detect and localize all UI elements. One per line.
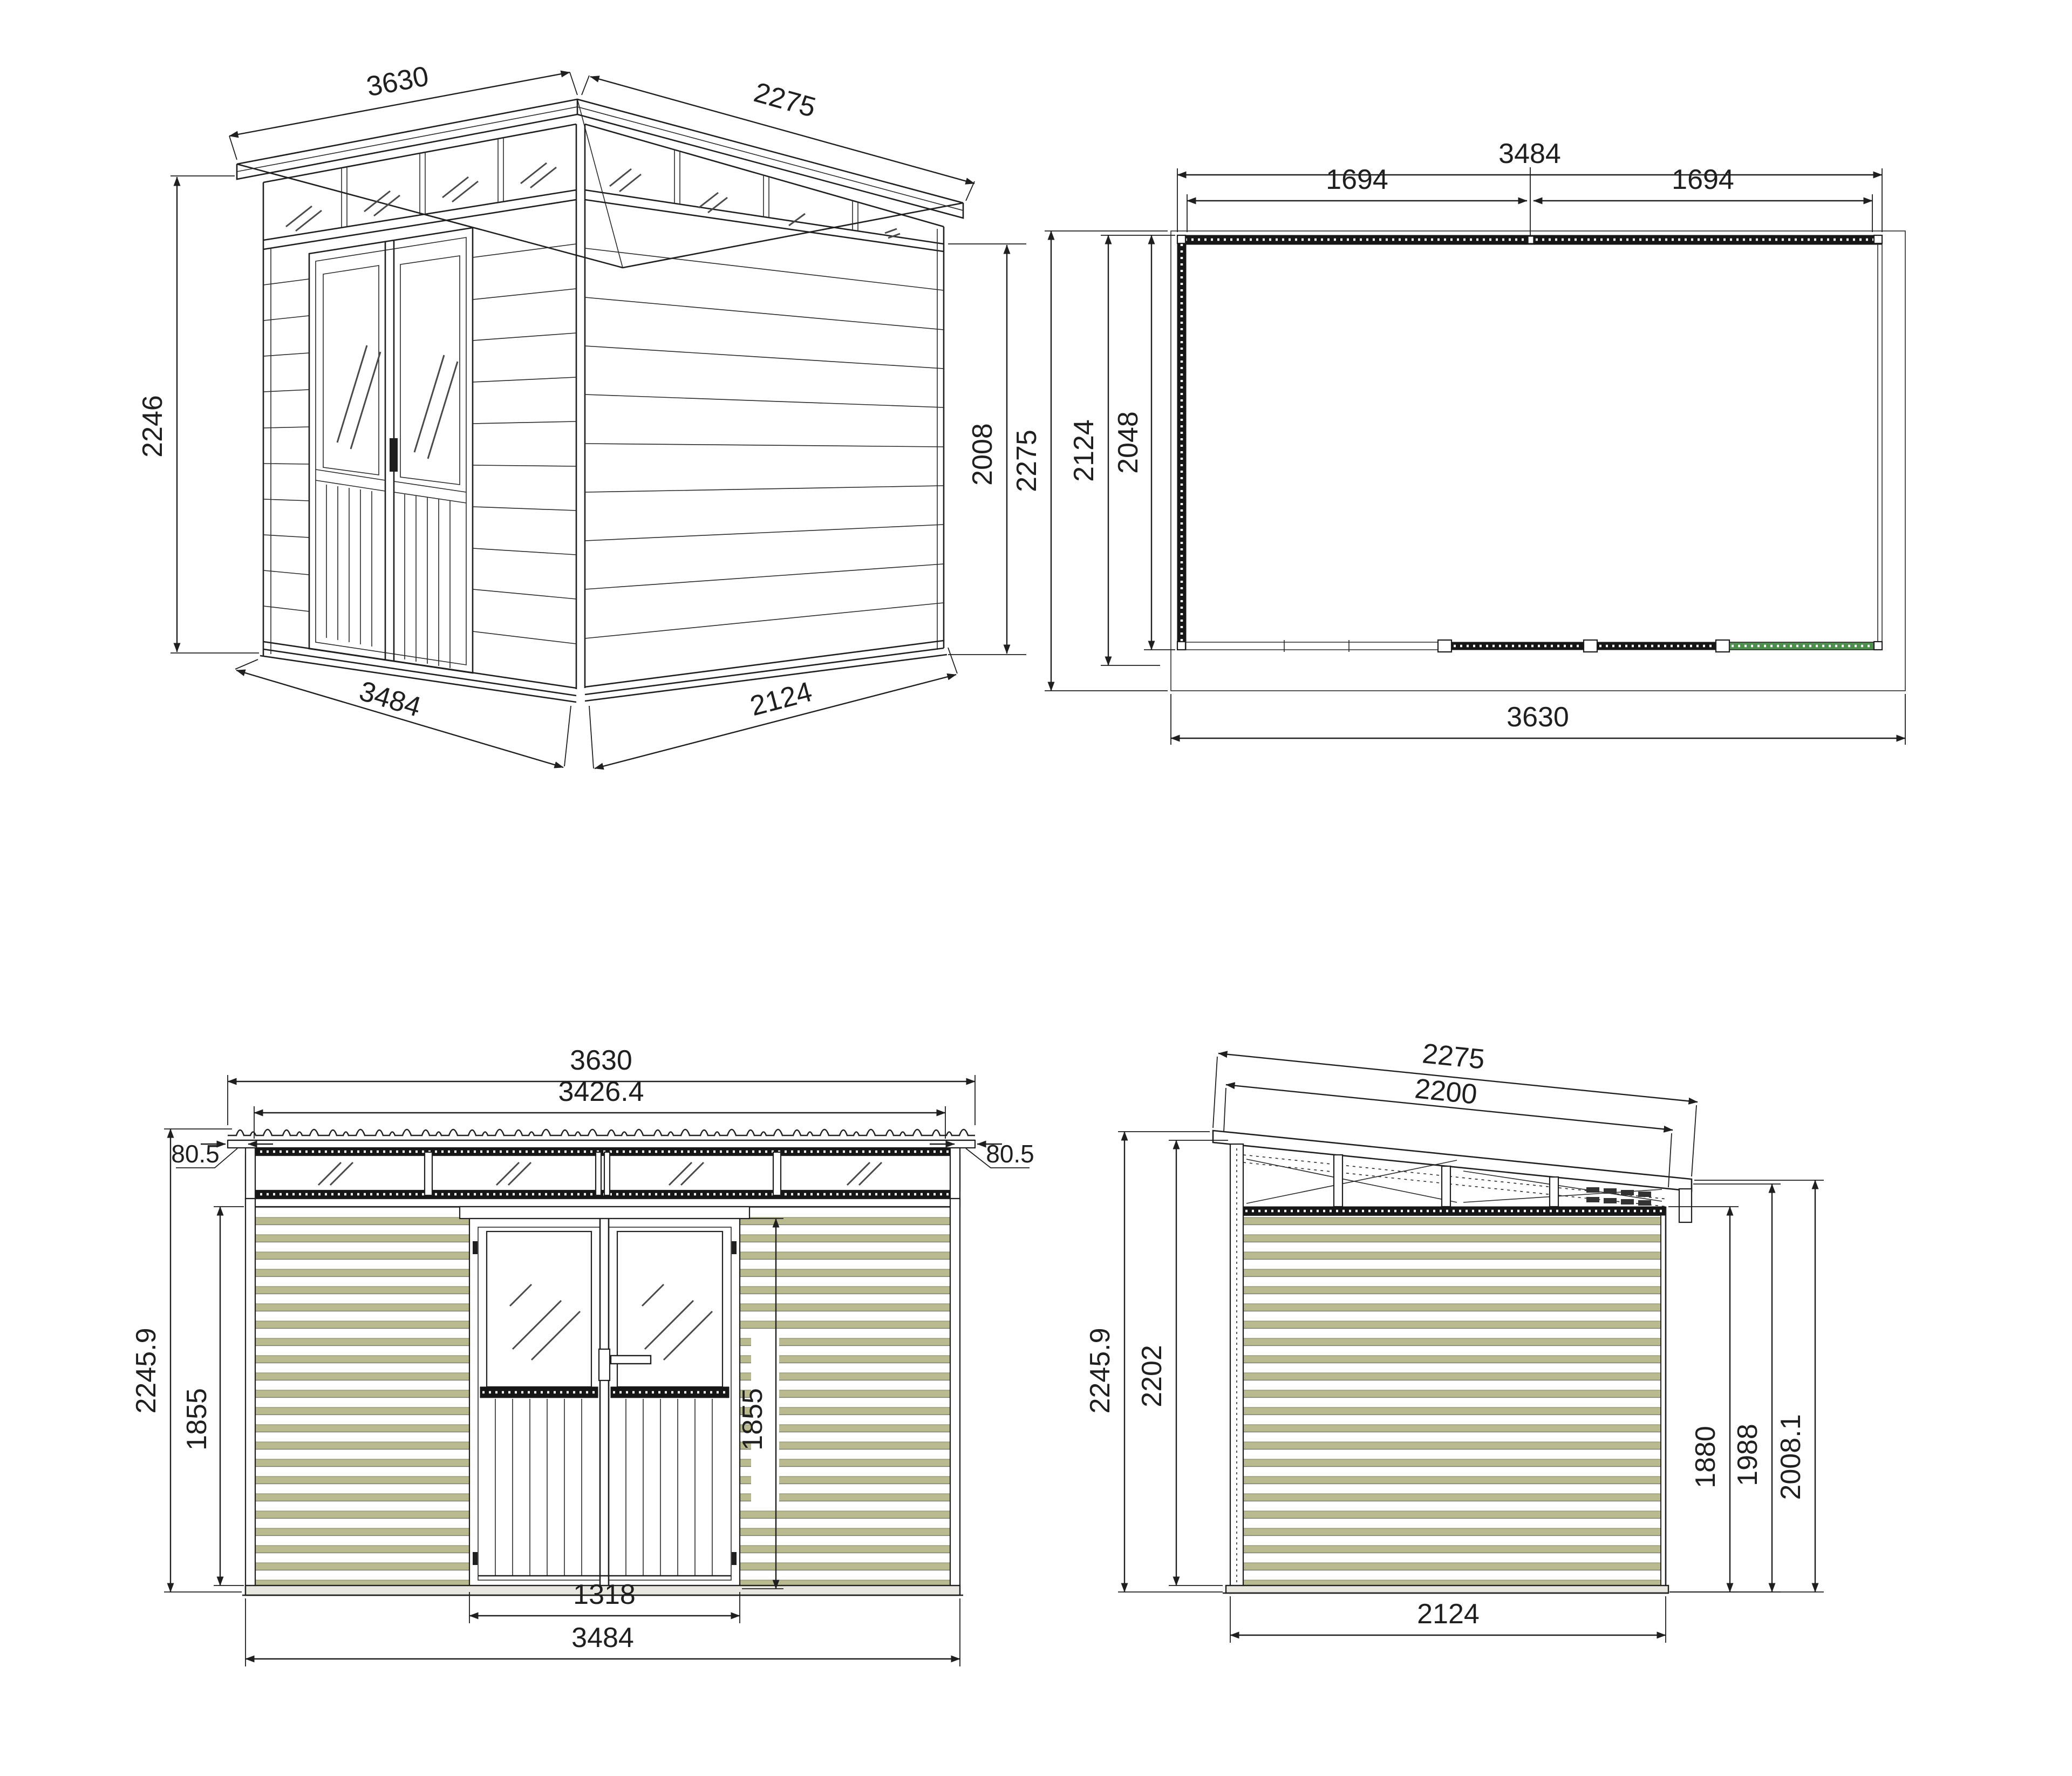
dim-label: 2202 (1136, 1345, 1168, 1407)
iso-clerestory-right (585, 124, 944, 251)
front-roof-fascia (228, 1140, 975, 1148)
side-truss (1246, 1155, 1662, 1207)
door-handle (390, 438, 398, 472)
front-clerestory (246, 1148, 960, 1207)
dim-label: 2124 (747, 676, 815, 722)
dim-label: 1880 (1690, 1426, 1721, 1488)
dim-label: 1694 (1326, 164, 1388, 195)
dim-label: 1988 (1732, 1424, 1763, 1486)
dim-label: 2245.9 (131, 1328, 162, 1413)
dim-label: 80.5 (171, 1140, 220, 1168)
side-elevation: 2275 2200 2245.9 2202 1880 1988 2008.1 2… (1085, 1038, 1824, 1643)
dim-label: 3630 (1507, 702, 1569, 733)
dim-label: 2275 (1011, 430, 1042, 492)
front-double-door (460, 1207, 749, 1589)
plan-dimensions: 3484 1694 1694 2275 2124 2048 3630 (1011, 138, 1905, 745)
dim-label: 3484 (1498, 138, 1561, 169)
dim-label: 80.5 (986, 1140, 1034, 1168)
dim-label: 2246 (137, 395, 168, 458)
plan-view: 3484 1694 1694 2275 2124 2048 3630 (1011, 138, 1905, 745)
door-handle (611, 1356, 651, 1364)
front-corner-left (246, 1199, 255, 1595)
iso-clerestory-left (263, 124, 576, 249)
plan-roof-outline (1171, 231, 1905, 691)
glass-marks (286, 163, 556, 231)
front-elevation: 3630 3426.4 80.5 80.5 2245.9 1855 1855 1… (131, 1045, 1034, 1666)
dim-label: 2048 (1113, 411, 1144, 474)
dim-label: 3426.4 (558, 1076, 644, 1107)
drawing-canvas: 3630 2275 2246 2008 3484 2124 (0, 0, 2072, 1776)
dim-label: 2124 (1068, 419, 1100, 482)
dim-label: 2275 (751, 77, 819, 124)
dim-label: 3630 (364, 60, 431, 103)
front-roof-corrugation (228, 1128, 975, 1140)
dim-label: 3630 (570, 1045, 632, 1076)
technical-drawing-sheet: 3630 2275 2246 2008 3484 2124 (0, 0, 2072, 1776)
iso-double-door (309, 228, 473, 673)
dim-label: 2200 (1413, 1073, 1478, 1110)
dim-label: 2124 (1417, 1598, 1480, 1630)
isometric-view: 3630 2275 2246 2008 3484 2124 (137, 60, 1026, 768)
front-corner-right (950, 1199, 960, 1595)
dim-label: 2275 (1421, 1038, 1486, 1075)
dim-label: 2008.1 (1775, 1414, 1807, 1500)
plan-walls (1177, 235, 1882, 652)
iso-wall-left (260, 244, 576, 702)
side-wall (1223, 1144, 1668, 1593)
dim-label: 3484 (571, 1622, 634, 1653)
front-siding-left (255, 1207, 469, 1586)
dim-label: 1694 (1672, 164, 1734, 195)
side-base (1226, 1586, 1668, 1593)
side-front-post (1230, 1144, 1243, 1592)
side-vent (1586, 1187, 1651, 1206)
dim-label: 2008 (967, 423, 998, 486)
iso-wall-right (585, 227, 947, 701)
door-lock (599, 1349, 610, 1380)
dim-label: 1855 (737, 1388, 768, 1451)
dim-label: 1318 (573, 1579, 636, 1610)
dim-label: 2245.9 (1085, 1328, 1116, 1413)
dim-label: 1855 (181, 1388, 213, 1451)
